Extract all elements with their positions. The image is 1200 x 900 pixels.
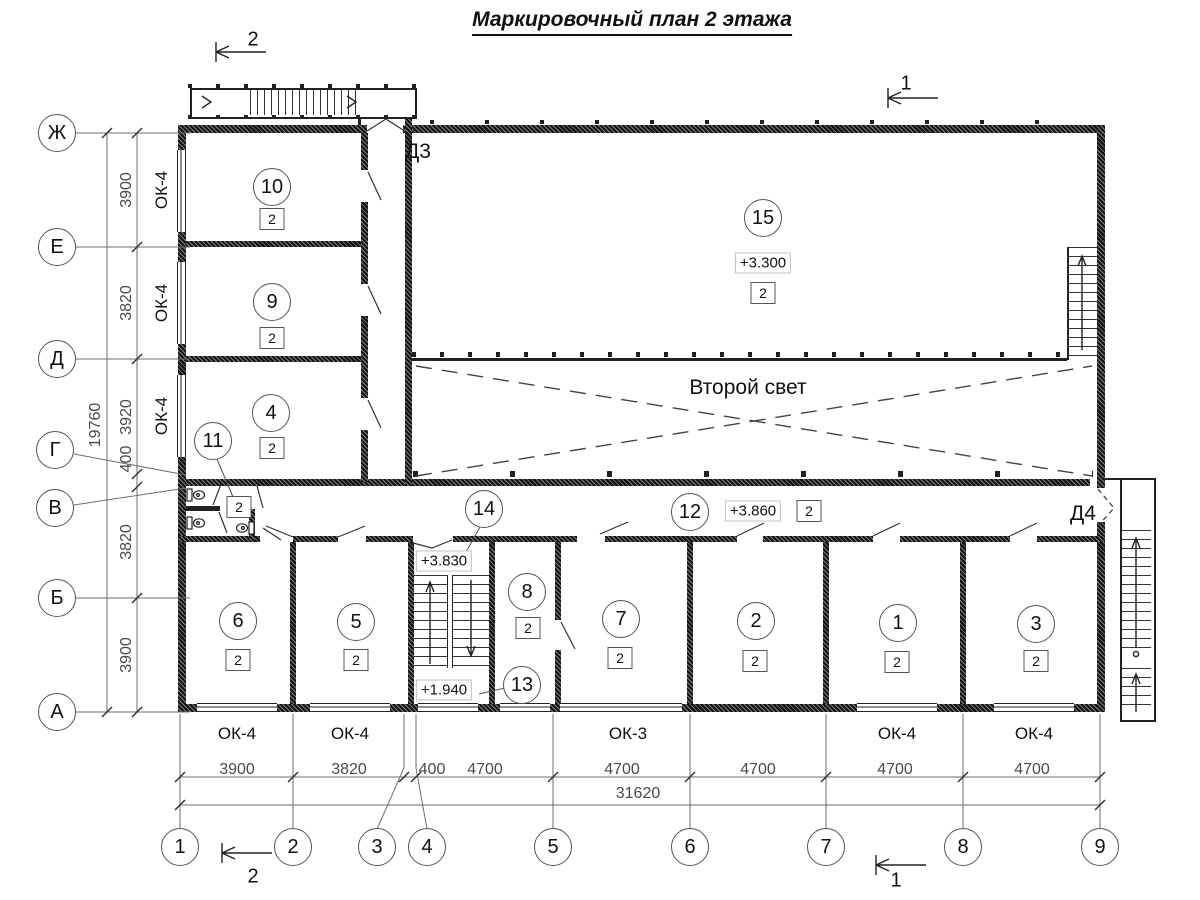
axis-bubble-1: 1 bbox=[161, 828, 199, 866]
room-number-3: 3 bbox=[1017, 605, 1055, 643]
room-number-4: 4 bbox=[252, 394, 290, 432]
axis-bubble-6: 6 bbox=[671, 828, 709, 866]
window-bottom-5 bbox=[560, 703, 682, 712]
room-number-14: 14 bbox=[465, 490, 503, 528]
axis-bubble-В: В bbox=[36, 489, 74, 527]
top-wall-ticks bbox=[430, 120, 1090, 124]
room-type-mark-7: 2 bbox=[608, 647, 633, 669]
window-bottom-6 bbox=[857, 703, 937, 712]
room-type-mark-10: 2 bbox=[260, 208, 285, 230]
wall-corridor-south-7 bbox=[900, 536, 1010, 542]
wall-corridor-south-8 bbox=[1037, 536, 1105, 542]
room-number-8: 8 bbox=[508, 573, 546, 611]
room-type-mark-15: 2 bbox=[751, 282, 776, 304]
wall-corridor-south-3 bbox=[366, 536, 413, 542]
door-break-lines bbox=[367, 119, 1114, 526]
wall-rooms-east-1 bbox=[361, 133, 368, 170]
dim-bottom-3: 4700 bbox=[467, 761, 503, 779]
room-type-mark-8: 2 bbox=[516, 617, 541, 639]
partition-axis-8 bbox=[960, 542, 966, 704]
axis-bubble-А: А bbox=[38, 693, 76, 731]
section-mark-1: 1 bbox=[900, 73, 911, 96]
section-mark-2: 2 bbox=[247, 866, 258, 889]
drawing-title: Маркировочный план 2 этажа bbox=[472, 8, 792, 36]
wall-right-lower bbox=[1097, 522, 1105, 712]
dim-bottom-1: 3820 bbox=[331, 761, 367, 779]
window-label-left-0: ОК-4 bbox=[152, 171, 172, 209]
axis-bubble-Д: Д bbox=[38, 340, 76, 378]
axis-bubble-Е: Е bbox=[38, 228, 76, 266]
wall-axis-e bbox=[186, 241, 368, 247]
window-left-3 bbox=[177, 375, 186, 457]
partition-axis-6 bbox=[687, 542, 693, 704]
axis-bubble-Б: Б bbox=[38, 579, 76, 617]
window-label-left-1: ОК-4 bbox=[152, 284, 172, 322]
exterior-stair-right-treads-1 bbox=[1122, 530, 1151, 651]
partition-axis-5-lower bbox=[555, 650, 561, 704]
void-label: Второй свет bbox=[683, 376, 812, 400]
dim-left-3: 400 bbox=[118, 446, 136, 473]
section-arrows bbox=[216, 42, 938, 875]
wall-top-right bbox=[403, 125, 1105, 133]
room-type-mark-9: 2 bbox=[260, 327, 285, 349]
wall-rooms-east-3 bbox=[361, 316, 368, 398]
partition-axis-7 bbox=[823, 542, 829, 704]
window-label-left-2: ОК-4 bbox=[152, 397, 172, 435]
wall-corridor-south-1 bbox=[178, 536, 260, 542]
dim-left-5: 3900 bbox=[118, 637, 136, 673]
partition-axis-2 bbox=[290, 542, 296, 704]
room-type-mark-3: 2 bbox=[1024, 650, 1049, 672]
wall-rooms-east-2 bbox=[361, 202, 368, 284]
exterior-stair-right-treads-2 bbox=[1122, 668, 1151, 713]
dim-bottom-4: 4700 bbox=[604, 761, 640, 779]
room-number-10: 10 bbox=[253, 168, 291, 206]
room-number-12: 12 bbox=[671, 493, 709, 531]
room-number-15: 15 bbox=[744, 199, 782, 237]
toilet-stall-wall bbox=[186, 506, 220, 511]
dim-bottom-total: 31620 bbox=[616, 785, 661, 803]
dim-left-2: 3920 bbox=[118, 399, 136, 435]
exterior-stair-top-rail-1 bbox=[188, 84, 416, 88]
exterior-stair-right-link bbox=[1105, 478, 1120, 480]
room-type-mark-5: 2 bbox=[344, 649, 369, 671]
axis-bubble-3: 3 bbox=[358, 828, 396, 866]
void-railing-posts bbox=[412, 352, 1067, 357]
window-bottom-4 bbox=[500, 703, 550, 712]
floor-plan-canvas: Маркировочный план 2 этажа bbox=[0, 0, 1200, 900]
void-railing bbox=[412, 358, 1067, 361]
axis-bubble-2: 2 bbox=[274, 828, 312, 866]
wall-right-upper bbox=[1097, 125, 1105, 488]
room-number-2: 2 bbox=[737, 602, 775, 640]
window-label-bottom-2: ОК-3 bbox=[609, 724, 647, 744]
window-bottom-1 bbox=[197, 703, 277, 712]
elevation-mark-1: +3.860 bbox=[725, 501, 781, 522]
axis-bubble-Г: Г bbox=[36, 431, 74, 469]
room-type-mark-11: 2 bbox=[227, 496, 252, 518]
wall-axis-d bbox=[186, 356, 368, 362]
dim-bottom-7: 4700 bbox=[1014, 761, 1050, 779]
wall-corridor-south-6 bbox=[763, 536, 873, 542]
window-left-2 bbox=[177, 262, 186, 344]
room-number-5: 5 bbox=[337, 603, 375, 641]
wall-corridor-north bbox=[186, 479, 1090, 486]
room-number-7: 7 bbox=[602, 600, 640, 638]
dim-bottom-6: 4700 bbox=[877, 761, 913, 779]
wall-corridor-south-5 bbox=[605, 536, 737, 542]
wall-corridor-south-2 bbox=[293, 536, 338, 542]
window-label-bottom-3: ОК-4 bbox=[878, 724, 916, 744]
room-number-11: 11 bbox=[194, 422, 232, 460]
partition-axis-5-upper bbox=[555, 542, 561, 620]
elevation-mark-0: +3.300 bbox=[735, 253, 791, 274]
window-label-bottom-0: ОК-4 bbox=[218, 724, 256, 744]
dim-bottom-2: 400 bbox=[419, 761, 446, 779]
window-left-1 bbox=[177, 150, 186, 232]
room-number-9: 9 bbox=[253, 283, 291, 321]
wall-top-left bbox=[178, 125, 367, 133]
room-type-mark-2: 2 bbox=[743, 650, 768, 672]
room-type-mark-1: 2 bbox=[885, 651, 910, 673]
axis-bubble-4: 4 bbox=[408, 828, 446, 866]
wall-rooms-east-4 bbox=[361, 430, 368, 482]
dim-bottom-5: 4700 bbox=[740, 761, 776, 779]
dim-left-1: 3820 bbox=[118, 285, 136, 321]
elevation-mark-3: +1.940 bbox=[416, 680, 472, 701]
axis-bubble-Ж: Ж bbox=[38, 114, 76, 152]
room-type-mark-6: 2 bbox=[226, 649, 251, 671]
axis-bubble-5: 5 bbox=[534, 828, 572, 866]
room-number-6: 6 bbox=[219, 602, 257, 640]
section-mark-0: 2 bbox=[247, 29, 258, 52]
room-number-13: 13 bbox=[503, 666, 541, 704]
void-floor-posts bbox=[413, 471, 1093, 477]
window-label-bottom-4: ОК-4 bbox=[1015, 724, 1053, 744]
dim-left-total: 19760 bbox=[87, 403, 105, 448]
axis-bubble-9: 9 bbox=[1081, 828, 1119, 866]
room-number-1: 1 bbox=[879, 604, 917, 642]
partition-stair-east bbox=[489, 542, 495, 704]
window-label-bottom-1: ОК-4 bbox=[331, 724, 369, 744]
dim-left-0: 3900 bbox=[118, 172, 136, 208]
dim-bottom-0: 3900 bbox=[219, 761, 255, 779]
axis-bubble-8: 8 bbox=[944, 828, 982, 866]
door-label-Д4: Д4 bbox=[1070, 502, 1096, 526]
room-type-mark-12: 2 bbox=[797, 500, 822, 522]
window-bottom-2 bbox=[310, 703, 390, 712]
room-type-mark-4: 2 bbox=[260, 437, 285, 459]
hall-stair-treads bbox=[1069, 247, 1097, 360]
dim-left-4: 3820 bbox=[118, 524, 136, 560]
exterior-stair-top-treads bbox=[250, 90, 360, 115]
window-bottom-7 bbox=[994, 703, 1074, 712]
exterior-stair-top-rail-2 bbox=[188, 115, 416, 119]
section-mark-3: 1 bbox=[890, 870, 901, 893]
window-bottom-3 bbox=[418, 703, 478, 712]
axis-bubble-7: 7 bbox=[807, 828, 845, 866]
central-stair-divider bbox=[447, 575, 453, 668]
elevation-mark-2: +3.830 bbox=[416, 551, 472, 572]
door-label-Д3: Д3 bbox=[405, 140, 431, 164]
